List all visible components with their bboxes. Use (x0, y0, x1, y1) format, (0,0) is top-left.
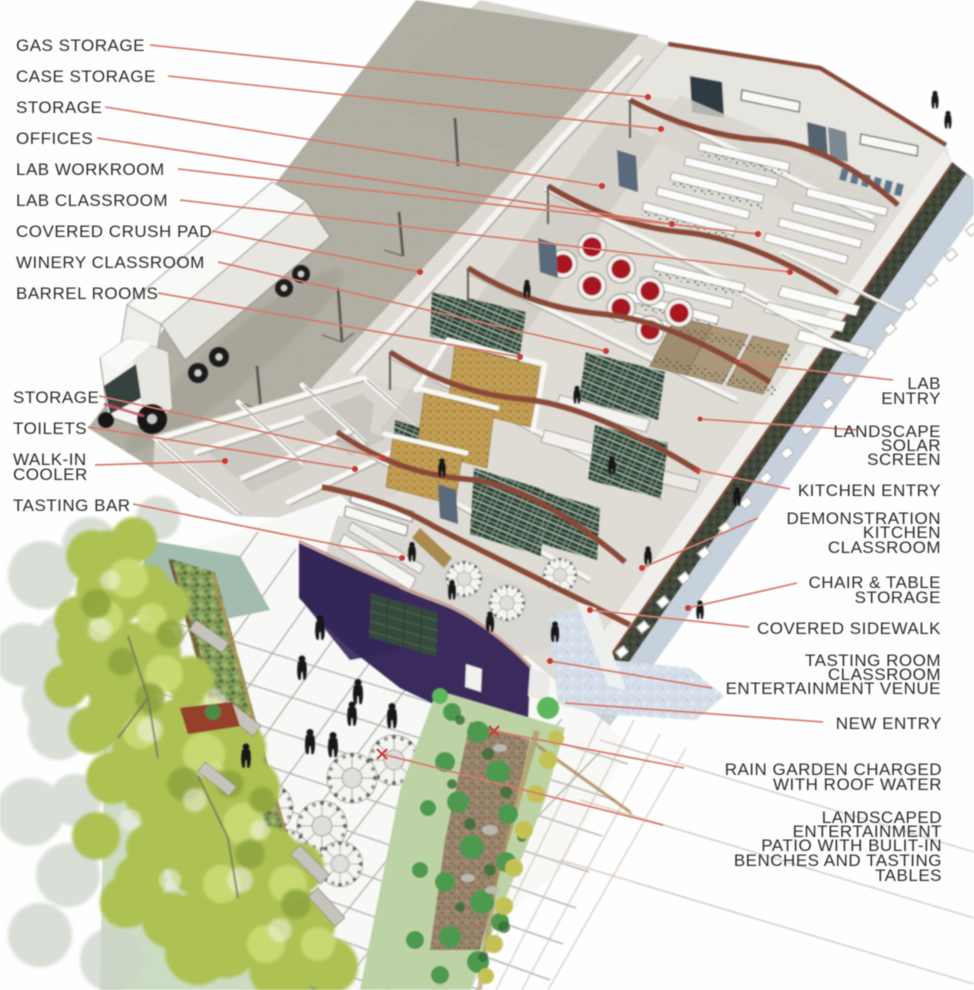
svg-text:STORAGE: STORAGE (16, 98, 102, 117)
svg-text:CLASSROOM: CLASSROOM (828, 538, 941, 557)
svg-text:GAS STORAGE: GAS STORAGE (16, 36, 145, 55)
svg-text:SCREEN: SCREEN (867, 450, 941, 469)
svg-text:WITH ROOF WATER: WITH ROOF WATER (773, 775, 942, 794)
svg-text:NEW ENTRY: NEW ENTRY (836, 714, 942, 733)
svg-text:TOILETS: TOILETS (13, 419, 87, 438)
svg-text:OFFICES: OFFICES (16, 129, 93, 148)
svg-text:COVERED CRUSH PAD: COVERED CRUSH PAD (16, 222, 212, 241)
svg-text:ENTERTAINMENT VENUE: ENTERTAINMENT VENUE (726, 679, 941, 698)
svg-text:LAB WORKROOM: LAB WORKROOM (16, 160, 165, 179)
svg-text:LAB CLASSROOM: LAB CLASSROOM (16, 191, 168, 210)
svg-text:ENTRY: ENTRY (881, 389, 941, 408)
svg-text:BARREL ROOMS: BARREL ROOMS (16, 284, 158, 303)
svg-text:COVERED SIDEWALK: COVERED SIDEWALK (757, 619, 941, 638)
svg-text:TABLES: TABLES (875, 866, 942, 885)
svg-text:TASTING BAR: TASTING BAR (13, 496, 131, 515)
svg-text:CASE STORAGE: CASE STORAGE (16, 67, 156, 86)
svg-text:STORAGE: STORAGE (13, 388, 99, 407)
svg-text:STORAGE: STORAGE (855, 588, 941, 607)
svg-text:COOLER: COOLER (13, 465, 88, 484)
svg-text:WINERY CLASSROOM: WINERY CLASSROOM (16, 253, 205, 272)
svg-text:KITCHEN ENTRY: KITCHEN ENTRY (798, 481, 941, 500)
